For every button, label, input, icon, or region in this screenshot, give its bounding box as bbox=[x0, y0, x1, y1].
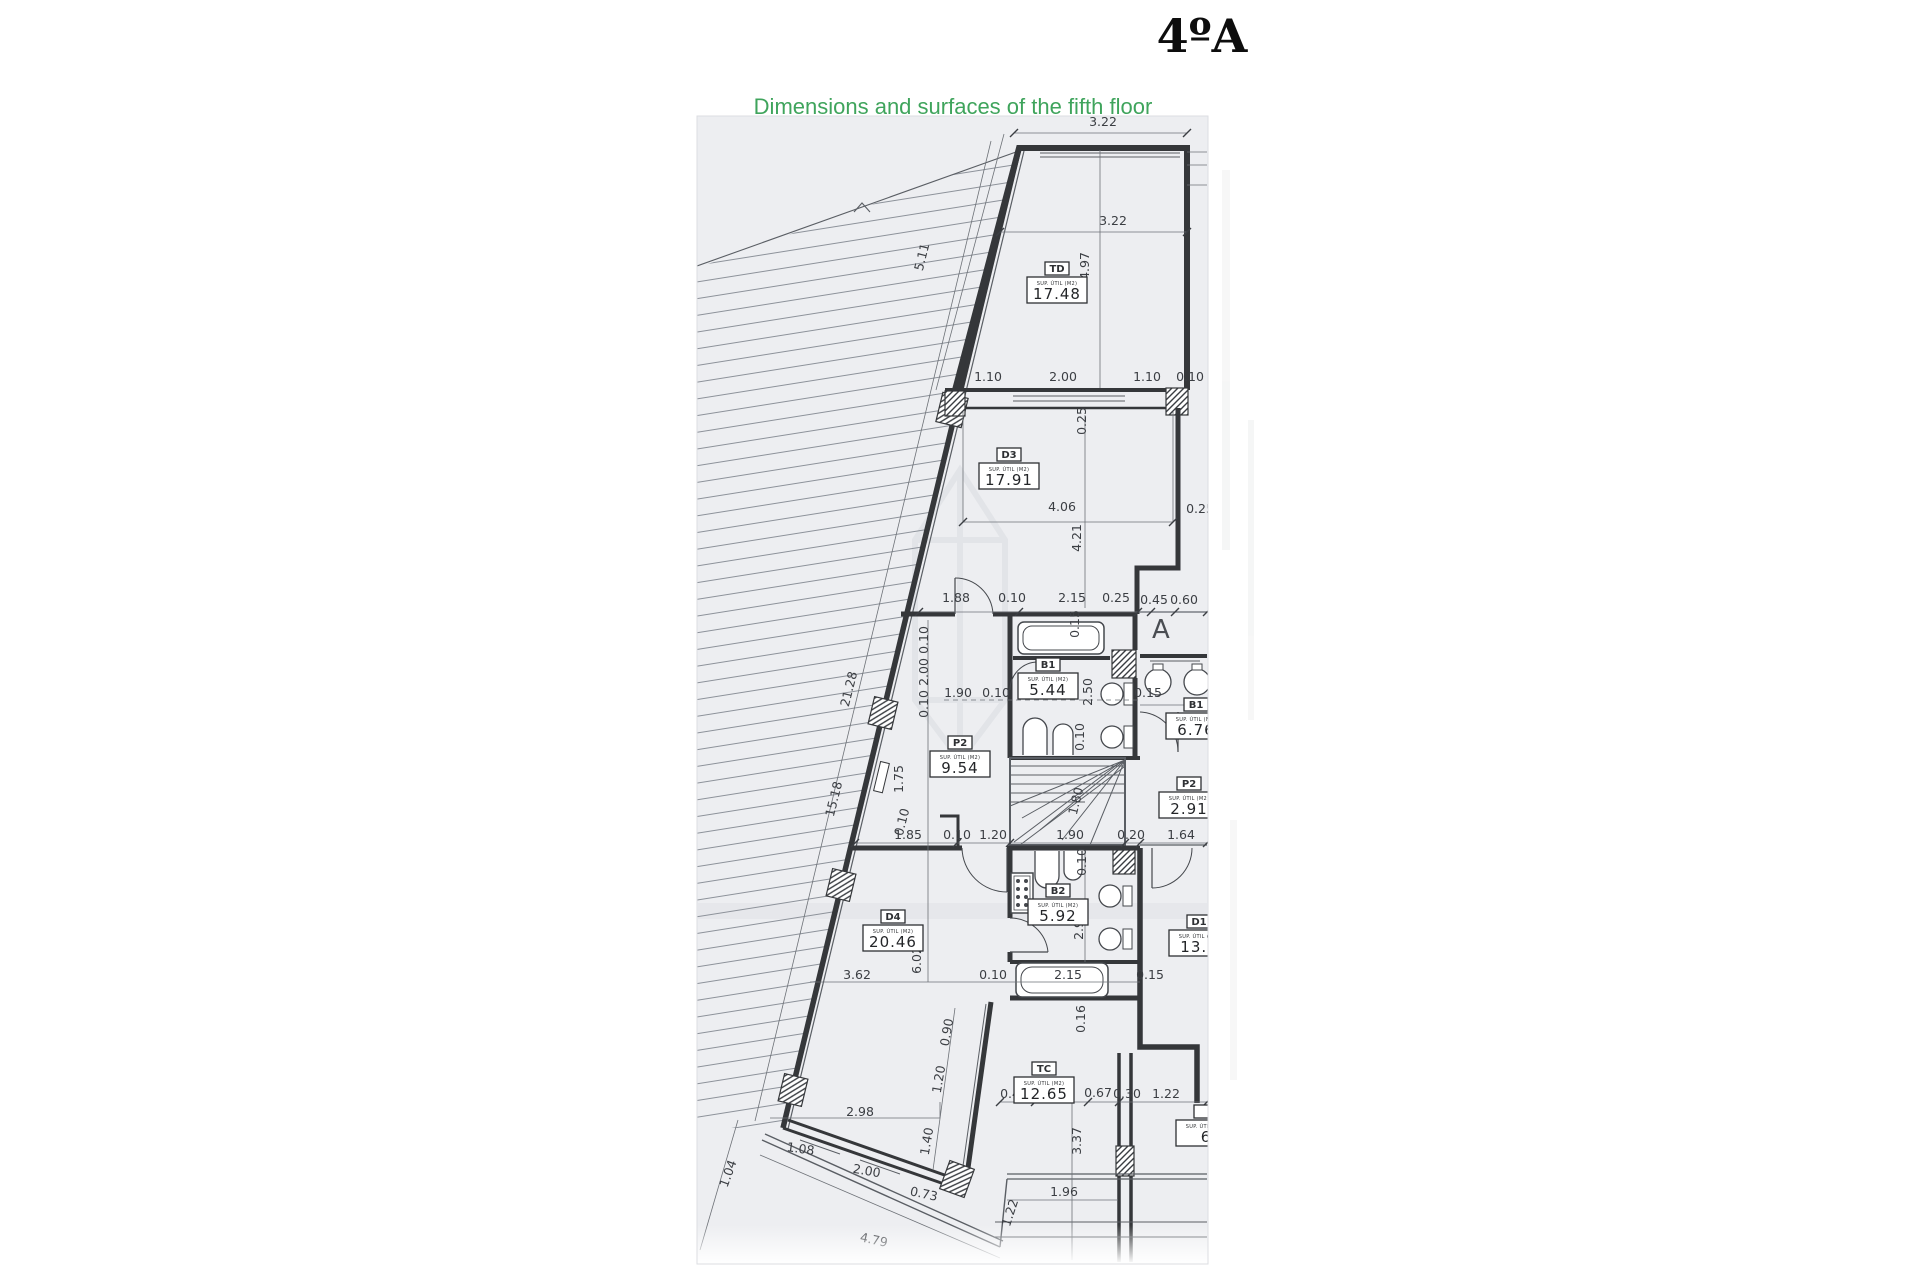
dimension-label: 1.75 bbox=[891, 765, 906, 793]
dimension-label: 3.22 bbox=[1099, 213, 1127, 228]
floor-plan-canvas: 4ºA Dimensions and surfaces of the fifth… bbox=[0, 0, 1920, 1280]
dimension-label: 0.20 bbox=[1117, 827, 1145, 842]
dimension-label: 1.85 bbox=[894, 827, 922, 842]
room-area-value: 12.65 bbox=[1020, 1085, 1068, 1103]
room-code: P2 bbox=[1182, 779, 1196, 790]
dimension-label: 0.10 bbox=[982, 685, 1010, 700]
dimension-label: 1.90 bbox=[944, 685, 972, 700]
dimension-label: 2.15 bbox=[1058, 590, 1086, 605]
dimension-label: 3.62 bbox=[843, 967, 871, 982]
dimension-label: 1.22 bbox=[1152, 1086, 1180, 1101]
dimension-label: 0.10 bbox=[998, 590, 1026, 605]
room-code: D4 bbox=[885, 912, 900, 923]
dimension-label: 4.21 bbox=[1069, 524, 1084, 552]
dimension-label: 0.10 bbox=[916, 690, 931, 718]
dimension-label: 1.64 bbox=[1167, 827, 1195, 842]
dimension-label: 0.10 bbox=[979, 967, 1007, 982]
dimension-label: 0.10 bbox=[1072, 723, 1087, 751]
dimension-label: 0.10 bbox=[943, 827, 971, 842]
room-area-value: 20.46 bbox=[869, 933, 917, 951]
dimension-label: 1.10 bbox=[974, 369, 1002, 384]
room-code: TD bbox=[1049, 264, 1064, 275]
dimension-label: 0.30 bbox=[1113, 1086, 1141, 1101]
screenshot-root: 4ºA Dimensions and surfaces of the fifth… bbox=[0, 0, 1920, 1280]
scanned-plan: 3.223.224.975.111.102.001.100.100.254.06… bbox=[697, 114, 1236, 1264]
dimension-label: 0.10 bbox=[916, 626, 931, 654]
dimension-label: 3.37 bbox=[1069, 1127, 1084, 1155]
room-code: B1 bbox=[1041, 660, 1056, 671]
dimension-label: 0.15 bbox=[1067, 610, 1082, 638]
toilet-icon bbox=[1035, 851, 1059, 888]
dimension-label: 0.67 bbox=[1084, 1085, 1112, 1100]
dimension-label: 0.15 bbox=[1134, 685, 1162, 700]
dimension-label: 2.50 bbox=[1080, 678, 1095, 706]
bathtub-b1 bbox=[1018, 622, 1104, 654]
dimension-label: 0.16 bbox=[1073, 1005, 1088, 1033]
dimension-label: 0.15 bbox=[1136, 967, 1164, 982]
page-title: 4ºA bbox=[1157, 9, 1249, 63]
room-code: TC bbox=[1037, 1064, 1051, 1075]
room-code: P2 bbox=[953, 738, 967, 749]
room-area-value: 2.91 bbox=[1170, 800, 1207, 818]
dimension-label: 0.25 bbox=[1074, 407, 1089, 435]
dimension-label: 0.45 bbox=[1140, 592, 1168, 607]
dimension-label: 4.06 bbox=[1048, 499, 1076, 514]
dimension-label: 1.90 bbox=[1056, 827, 1084, 842]
room-code: D1 bbox=[1191, 917, 1206, 928]
dimension-label: 0.25 bbox=[1102, 590, 1130, 605]
room-area-value: 17.91 bbox=[985, 471, 1033, 489]
room-area-value: 5.92 bbox=[1039, 907, 1076, 925]
zone-letter: A bbox=[1152, 615, 1170, 645]
dimension-label: 0.60 bbox=[1170, 592, 1198, 607]
dimension-label: 1.88 bbox=[942, 590, 970, 605]
scan-bottom-fade bbox=[697, 1225, 1208, 1264]
dimension-label: 0.10 bbox=[1176, 369, 1204, 384]
dimension-label: 1.20 bbox=[979, 827, 1007, 842]
room-code: B2 bbox=[1051, 886, 1066, 897]
dimension-label: 2.00 bbox=[916, 658, 931, 686]
dimension-label: 4.97 bbox=[1077, 252, 1092, 280]
dimension-label: 2.00 bbox=[1049, 369, 1077, 384]
bidet-icon bbox=[1053, 724, 1073, 755]
room-area-value: 17.48 bbox=[1033, 285, 1081, 303]
dimension-label: 1.10 bbox=[1133, 369, 1161, 384]
toilet-icon bbox=[1023, 718, 1047, 755]
dimension-label: 2.15 bbox=[1054, 967, 1082, 982]
room-code: D3 bbox=[1001, 450, 1016, 461]
room-area-value: 9.54 bbox=[941, 759, 978, 777]
dimension-label: 1.96 bbox=[1050, 1184, 1078, 1199]
room-code: B1 bbox=[1189, 700, 1204, 711]
dimension-label: 0.10 bbox=[1074, 848, 1089, 876]
room-area-value: 5.44 bbox=[1029, 681, 1066, 699]
plan-subtitle: Dimensions and surfaces of the fifth flo… bbox=[754, 94, 1153, 119]
dimension-label: 2.98 bbox=[846, 1104, 874, 1119]
